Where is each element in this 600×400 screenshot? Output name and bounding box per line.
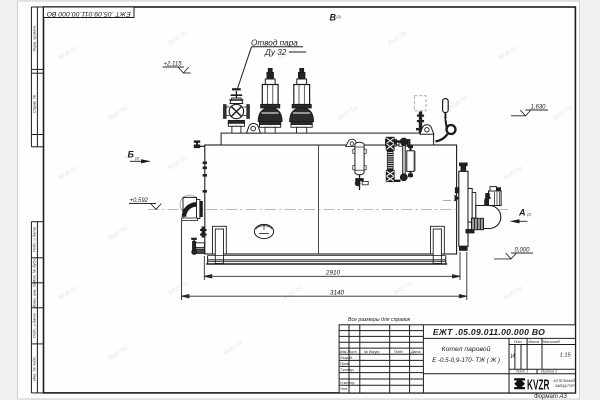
svg-text:2910: 2910 [325, 269, 341, 276]
svg-text:Б: Б [128, 150, 135, 160]
svg-text:ЕЖТ .05.09.011.00.000 ВО: ЕЖТ .05.09.011.00.000 ВО [433, 327, 545, 337]
svg-text:Е -0,5-0,9-170- ТЖ ( Ж ): Е -0,5-0,9-170- ТЖ ( Ж ) [432, 357, 500, 364]
svg-text:Взам. инв. №: Взам. инв. № [32, 282, 37, 307]
svg-text:Подп.: Подп. [394, 350, 404, 354]
svg-text:1:15: 1:15 [560, 353, 572, 359]
svg-text:Разраб.: Разраб. [340, 356, 353, 360]
svg-text:Лит.: Лит. [513, 340, 522, 344]
svg-text:1,630: 1,630 [531, 105, 547, 111]
svg-text:+2,115: +2,115 [164, 62, 183, 68]
svg-text:0,000: 0,000 [515, 248, 531, 254]
svg-text:КОТЕЛЬНЫЙ: КОТЕЛЬНЫЙ [554, 379, 576, 383]
svg-text:Котел паровой: Котел паровой [442, 345, 491, 353]
svg-text:3140: 3140 [330, 289, 345, 296]
svg-text:Листов 2: Листов 2 [540, 370, 557, 374]
svg-text:Подп. и дата: Подп. и дата [32, 313, 37, 339]
svg-text:KVZR: KVZR [527, 377, 550, 394]
svg-text:Инв. № подл.: Инв. № подл. [32, 356, 37, 381]
svg-text:Отвод пара: Отвод пара [251, 38, 298, 47]
svg-text:ЕЖТ .05.09.011.00.000 ВО: ЕЖТ .05.09.011.00.000 ВО [47, 10, 131, 17]
svg-text:(2): (2) [135, 157, 139, 161]
svg-text:Н.контр.: Н.контр. [340, 381, 355, 385]
svg-text:Ду 32: Ду 32 [264, 48, 287, 57]
svg-text:Подп. и дата: Подп. и дата [32, 226, 37, 252]
svg-text:Утв.: Утв. [340, 387, 348, 391]
svg-text:Пров.: Пров. [340, 362, 349, 366]
svg-text:А: А [518, 208, 526, 218]
svg-text:(2): (2) [337, 15, 341, 19]
svg-text:(2): (2) [527, 213, 531, 217]
svg-text:И: И [511, 354, 516, 360]
svg-text:+0,592: +0,592 [130, 198, 149, 204]
svg-text:Масштаб: Масштаб [543, 340, 561, 344]
svg-text:Масса: Масса [529, 340, 540, 344]
svg-text:№ докум.: № докум. [364, 350, 380, 354]
svg-text:Лист 1: Лист 1 [515, 370, 528, 374]
svg-text:Перв. примен.: Перв. примен. [32, 25, 37, 52]
svg-text:В: В [330, 13, 337, 23]
svg-text:Формат А3: Формат А3 [534, 394, 567, 400]
svg-text:Дата: Дата [410, 350, 420, 354]
svg-text:Все размеры для справок: Все размеры для справок [348, 317, 411, 323]
svg-text:Изм.Лист: Изм.Лист [340, 350, 357, 354]
svg-text:Инв. № дубл.: Инв. № дубл. [32, 258, 37, 283]
svg-text:ЗАВОД РЭП: ЗАВОД РЭП [555, 384, 575, 388]
svg-text:Справ. №: Справ. № [32, 94, 37, 113]
svg-text:Т.контр.: Т.контр. [340, 368, 355, 372]
